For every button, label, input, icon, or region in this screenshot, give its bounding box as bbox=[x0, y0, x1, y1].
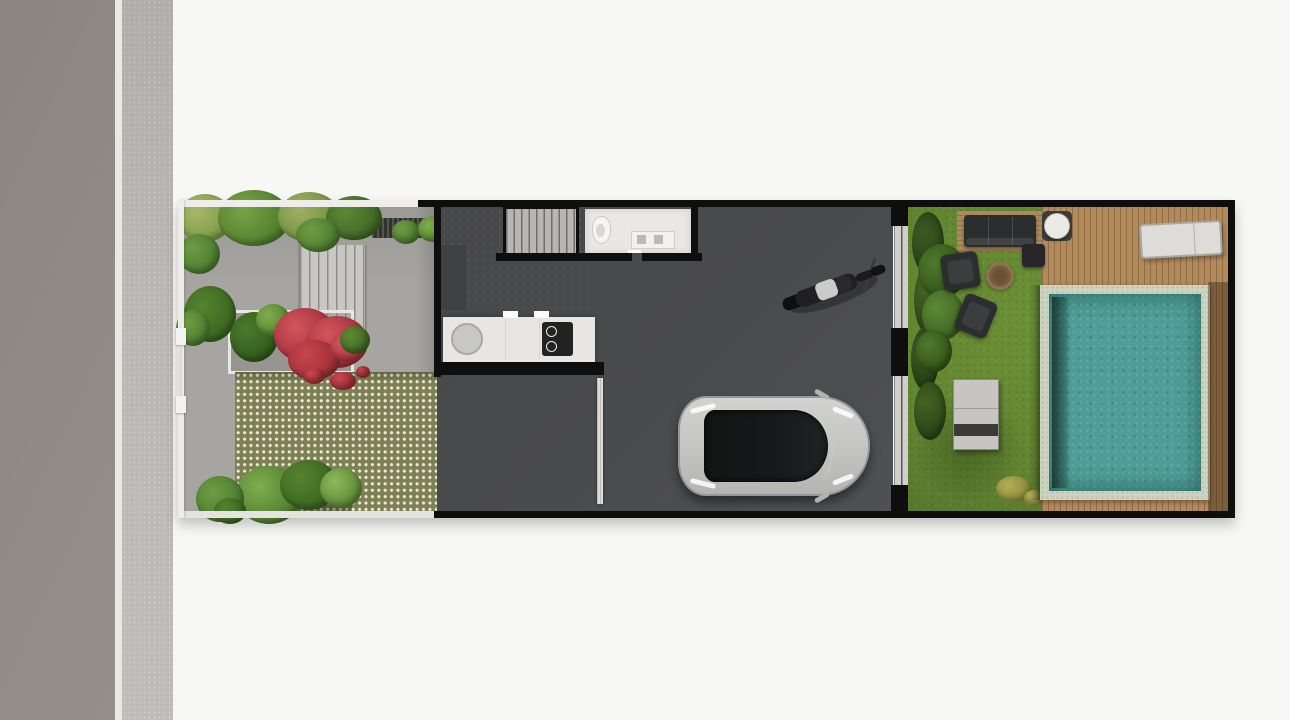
red-petal-spill bbox=[330, 372, 356, 390]
round-table bbox=[1044, 213, 1070, 239]
perimeter-wall-bottom bbox=[434, 511, 1235, 518]
kitchen-window-slit bbox=[503, 311, 518, 318]
garage-door bbox=[597, 378, 603, 504]
fire-pit bbox=[986, 262, 1014, 290]
fern bbox=[320, 468, 362, 508]
kitchen-counter bbox=[443, 317, 595, 362]
gate-post bbox=[176, 396, 186, 413]
bathroom-vanity bbox=[631, 231, 675, 249]
road-gutter-line bbox=[115, 0, 122, 720]
sun-lounger bbox=[1139, 220, 1223, 259]
shrub bbox=[392, 220, 420, 244]
kitchen-window-slit bbox=[534, 311, 549, 318]
car-roof-glass bbox=[704, 410, 828, 482]
wall bbox=[496, 253, 632, 261]
sidewalk-shading bbox=[122, 0, 173, 720]
car bbox=[678, 396, 870, 496]
outdoor-sofa bbox=[964, 215, 1036, 247]
shrub bbox=[340, 326, 370, 354]
red-petal-spill bbox=[356, 366, 370, 378]
pool-bench-step bbox=[1052, 297, 1068, 488]
gate-leaf bbox=[179, 346, 182, 396]
pool-water bbox=[1049, 294, 1201, 491]
gate-post bbox=[176, 328, 186, 345]
kitchen-sink bbox=[451, 323, 483, 355]
backyard-tree bbox=[916, 330, 952, 372]
bathroom bbox=[585, 209, 691, 253]
site-plan-render bbox=[0, 0, 1290, 720]
perimeter-wall-right bbox=[1228, 200, 1235, 518]
pool-edge-shadow bbox=[1030, 285, 1040, 500]
hedge bbox=[914, 382, 946, 440]
garden-rear-fence bbox=[178, 511, 436, 518]
cooktop bbox=[542, 322, 573, 356]
garden-front-fence bbox=[178, 200, 420, 207]
entry-cabinet bbox=[440, 245, 466, 310]
swimming-pool bbox=[1040, 285, 1210, 500]
tree-canopy bbox=[178, 234, 220, 274]
perimeter-wall-top bbox=[418, 200, 1235, 207]
garden-table bbox=[953, 379, 999, 450]
kitchen-south-wall bbox=[434, 362, 604, 375]
car-highlight bbox=[832, 406, 854, 419]
road bbox=[0, 0, 115, 720]
car-highlight bbox=[832, 473, 854, 486]
motorcycle bbox=[774, 242, 894, 334]
wall bbox=[691, 206, 698, 261]
toilet bbox=[592, 216, 611, 244]
staircase bbox=[503, 206, 579, 256]
tree-canopy bbox=[296, 218, 340, 252]
car-windshield bbox=[813, 414, 834, 478]
lounge-chair bbox=[940, 251, 982, 292]
property-plot bbox=[178, 200, 1235, 518]
side-table bbox=[1022, 244, 1045, 267]
wall bbox=[434, 200, 441, 377]
deck-dark-strip bbox=[1208, 282, 1230, 511]
red-petal-spill bbox=[303, 368, 325, 384]
